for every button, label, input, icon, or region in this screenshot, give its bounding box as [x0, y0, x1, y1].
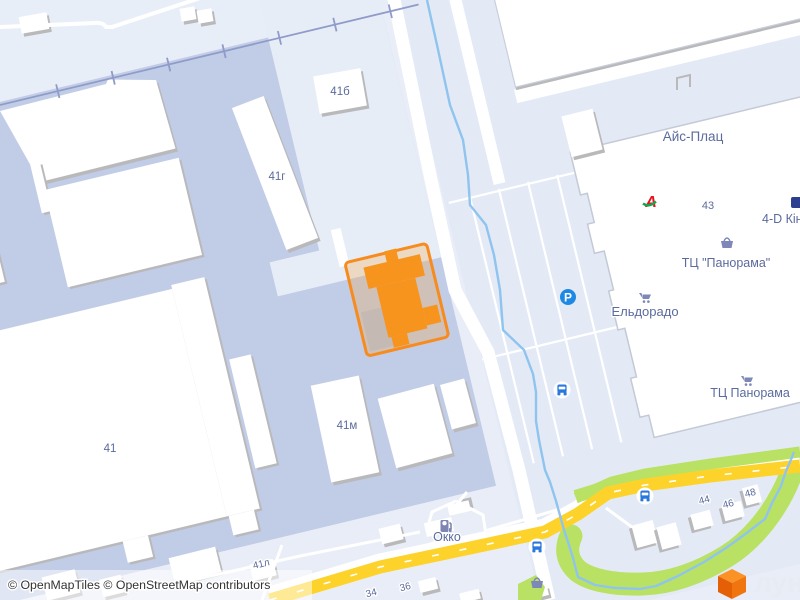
svg-text:ТЦ "Панорама": ТЦ "Панорама"	[682, 256, 770, 270]
svg-text:43: 43	[702, 200, 714, 212]
svg-text:41м: 41м	[337, 420, 358, 432]
svg-text:41г: 41г	[269, 171, 286, 183]
svg-text:© OpenMapTiles © OpenStreetMap: © OpenMapTiles © OpenStreetMap contribut…	[8, 578, 270, 592]
svg-text:Окко: Окко	[433, 530, 461, 544]
svg-text:41: 41	[104, 443, 117, 455]
svg-text:4-D Кіно: 4-D Кіно	[762, 212, 800, 226]
svg-text:Ельдорадо: Ельдорадо	[611, 304, 678, 319]
svg-text:P: P	[564, 291, 572, 305]
svg-text:41б: 41б	[330, 86, 350, 98]
svg-text:лун: лун	[754, 567, 800, 598]
svg-text:ТЦ Панорама: ТЦ Панорама	[710, 386, 790, 400]
svg-text:Айс-Плац: Айс-Плац	[663, 129, 724, 144]
